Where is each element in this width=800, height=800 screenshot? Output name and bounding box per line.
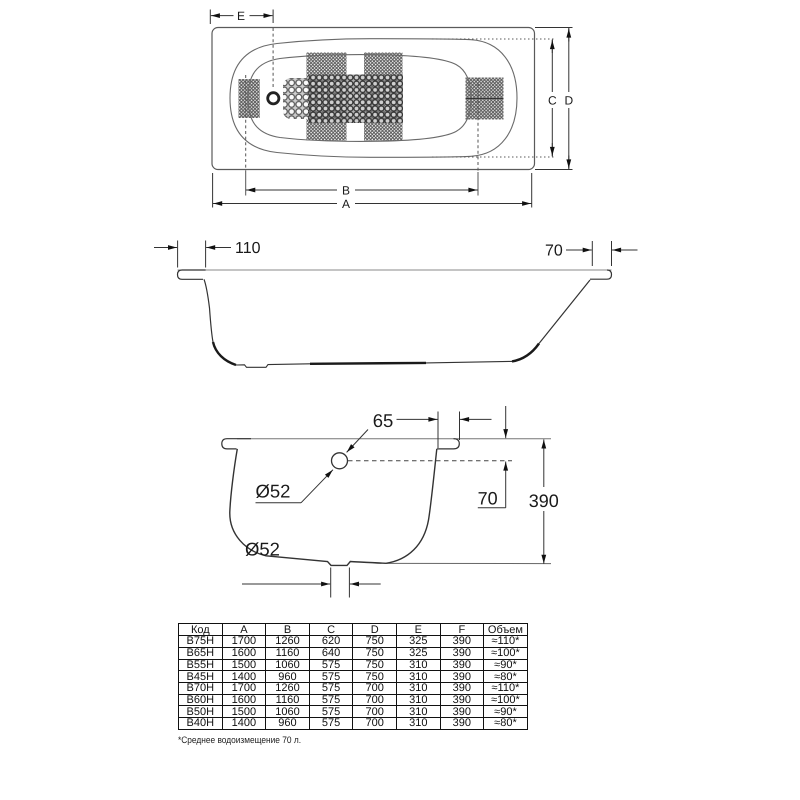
svg-text:A: A (342, 197, 350, 211)
svg-text:C: C (548, 94, 557, 108)
svg-text:70: 70 (545, 243, 566, 260)
svg-text:D: D (564, 94, 573, 108)
svg-text:70: 70 (478, 489, 498, 509)
svg-text:110: 110 (235, 240, 261, 257)
svg-text:Ø52: Ø52 (256, 481, 291, 502)
svg-text:65: 65 (373, 410, 394, 431)
svg-text:E: E (237, 9, 245, 23)
svg-text:390: 390 (529, 491, 559, 511)
svg-text:B: B (342, 184, 350, 198)
svg-text:Ø52: Ø52 (245, 539, 280, 560)
